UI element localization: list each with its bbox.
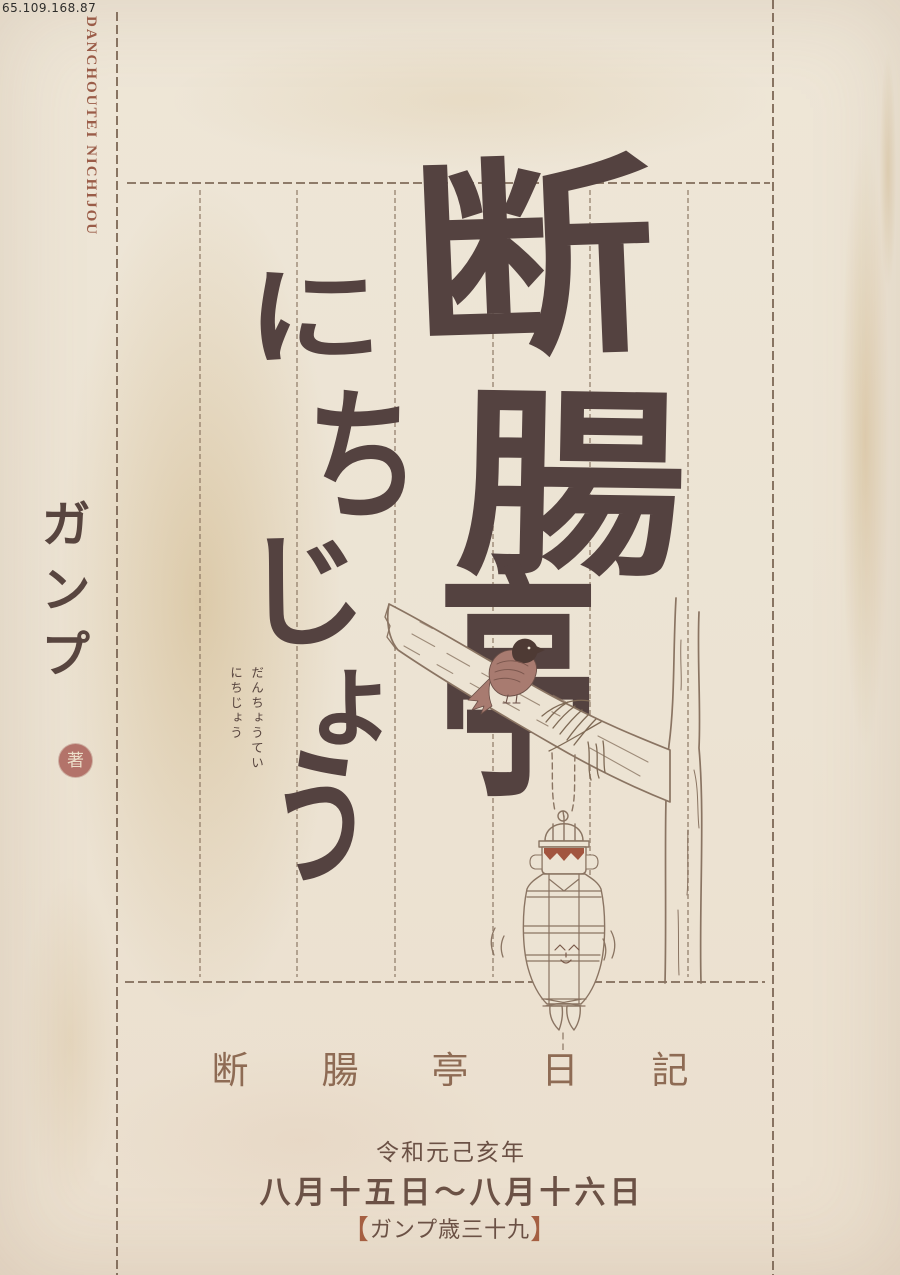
furigana-column-nichijou: にちじょう	[224, 666, 245, 771]
bracket-close: 】	[530, 1215, 558, 1245]
title-kana-chi: ち	[303, 383, 423, 533]
bracket-open: 【	[342, 1215, 370, 1245]
author-age-line: 【ガンプ歳三十九】	[0, 1208, 900, 1247]
author-seal-stamp: 著	[59, 744, 92, 777]
age-text: ガンプ歳三十九	[370, 1217, 530, 1242]
column-line	[199, 190, 201, 977]
title-kana-ji: じ	[241, 529, 369, 657]
tree-branch	[385, 604, 670, 802]
series-title: 断腸亭日記	[0, 1040, 900, 1094]
title-kana-ni: に	[244, 264, 383, 372]
watermark-ip: 65.109.168.87	[2, 1, 96, 15]
title-kanji-dan: 断	[406, 153, 660, 370]
spine-romaji-title: DANCHOUTEI NICHIJOU	[82, 16, 99, 252]
branch-illustration	[370, 580, 760, 1050]
title-kana-u: う	[267, 742, 375, 897]
hanging-doll-icon	[523, 811, 604, 1050]
furigana-column-danchoutei: だんちょうてい	[245, 666, 266, 771]
date-range-line: 八月十五日〜八月十六日	[0, 1167, 900, 1212]
title-furigana: だんちょうてい にちじょう	[224, 666, 266, 771]
era-year-line: 令和元己亥年	[0, 1133, 900, 1167]
poster-page: 65.109.168.87 DANCHOUTEI NICHIJOU ガンプ 著 …	[0, 0, 900, 1275]
author-name: ガンプ	[37, 498, 87, 748]
